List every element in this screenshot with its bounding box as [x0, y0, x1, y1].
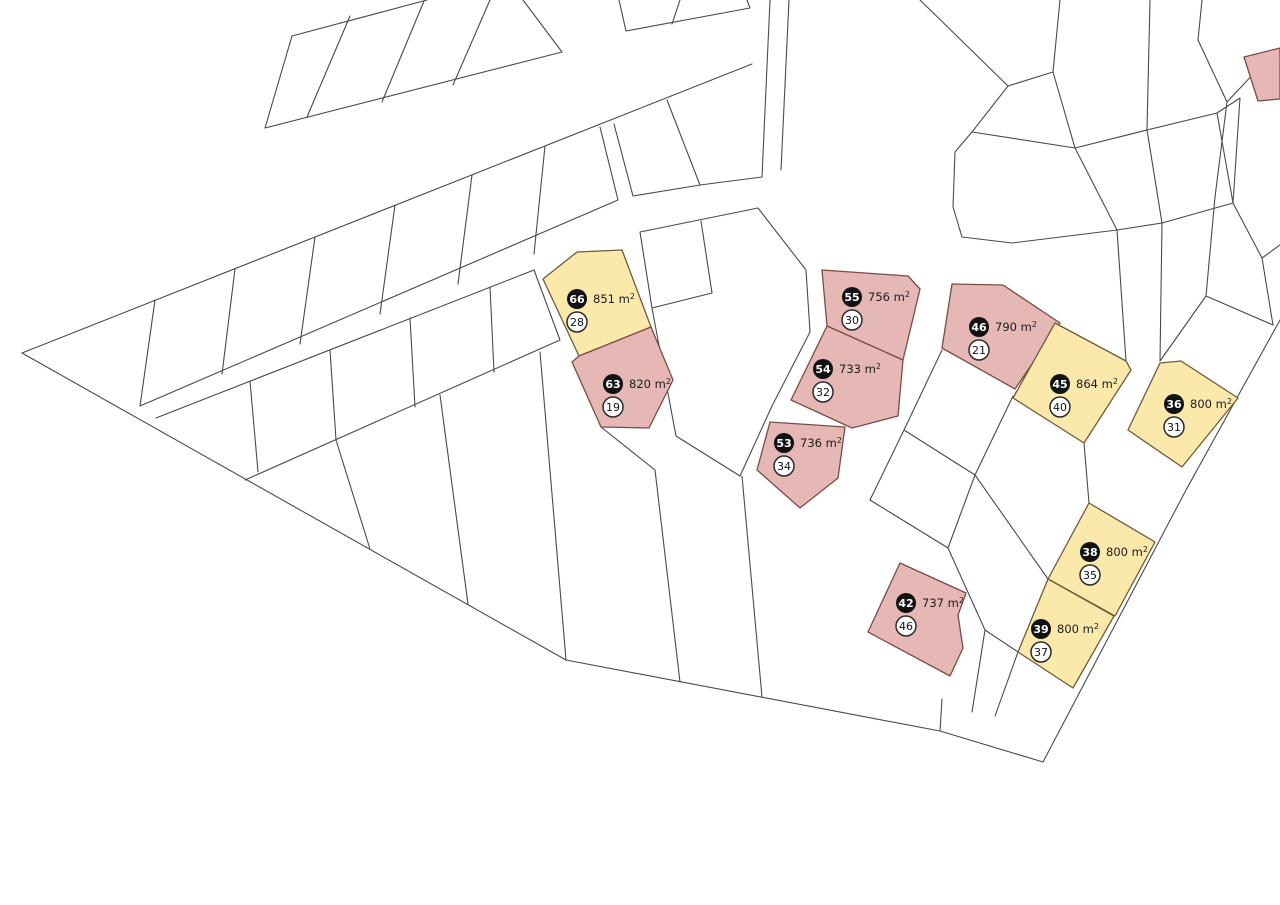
- lot-number-text: 32: [816, 386, 830, 399]
- lot-number-text: 40: [1053, 401, 1067, 414]
- parcel-number-text: 36: [1166, 398, 1182, 411]
- parcel-number-text: 54: [815, 363, 831, 376]
- boundary-band-b: [140, 124, 633, 406]
- parcel-area-text: 800 m2: [1106, 545, 1148, 559]
- boundary-band-d: [336, 352, 762, 697]
- boundary-top-right-block: [920, 0, 1240, 243]
- lot-number-text: 34: [777, 460, 791, 473]
- boundary-parcel36-area: [1117, 197, 1273, 361]
- lot-number-text: 21: [972, 344, 986, 357]
- parcel-area-text: 800 m2: [1190, 397, 1232, 411]
- parcel-number-text: 46: [971, 321, 987, 334]
- boundary-band-c: [156, 270, 560, 480]
- lot-number-text: 30: [845, 314, 859, 327]
- parcel-area-text: 851 m2: [593, 292, 635, 306]
- parcel-map: 66851 m22863820 m21955756 m23054733 m232…: [0, 0, 1280, 905]
- parcel-area-text: 733 m2: [839, 362, 881, 376]
- parcel-number-text: 66: [569, 293, 585, 306]
- boundary-top-middle: [619, 0, 789, 177]
- parcel-area-text: 790 m2: [995, 320, 1037, 334]
- parcel-42[interactable]: [868, 563, 966, 676]
- parcel-area-text: 800 m2: [1057, 622, 1099, 636]
- parcel-area-text: 737 m2: [922, 596, 964, 610]
- parcel-map-canvas: 66851 m22863820 m21955756 m23054733 m232…: [0, 0, 1280, 905]
- lot-number-text: 19: [606, 401, 620, 414]
- parcel-number-text: 55: [844, 291, 859, 304]
- parcel-number-text: 39: [1033, 623, 1048, 636]
- parcel-36[interactable]: [1128, 361, 1238, 467]
- lot-number-text: 31: [1167, 421, 1181, 434]
- parcel-edge-sliver: [1244, 48, 1280, 101]
- parcel-number-text: 53: [776, 437, 791, 450]
- parcel-53[interactable]: [757, 422, 845, 508]
- parcel-number-text: 38: [1082, 546, 1097, 559]
- parcel-area-text: 756 m2: [868, 290, 910, 304]
- boundary-band-top-left: [265, 0, 562, 128]
- lot-number-text: 28: [570, 316, 584, 329]
- parcel-number-text: 42: [898, 597, 913, 610]
- lot-number-text: 46: [899, 620, 913, 633]
- parcel-number-text: 45: [1052, 378, 1067, 391]
- lot-number-text: 37: [1034, 646, 1048, 659]
- boundary-middle-column: [633, 100, 762, 196]
- parcel-area-text: 820 m2: [629, 377, 671, 391]
- lot-number-text: 35: [1083, 569, 1097, 582]
- parcel-area-text: 736 m2: [800, 436, 842, 450]
- highlighted-parcels: [543, 48, 1280, 688]
- parcel-area-text: 864 m2: [1076, 377, 1118, 391]
- parcel-number-text: 63: [605, 378, 620, 391]
